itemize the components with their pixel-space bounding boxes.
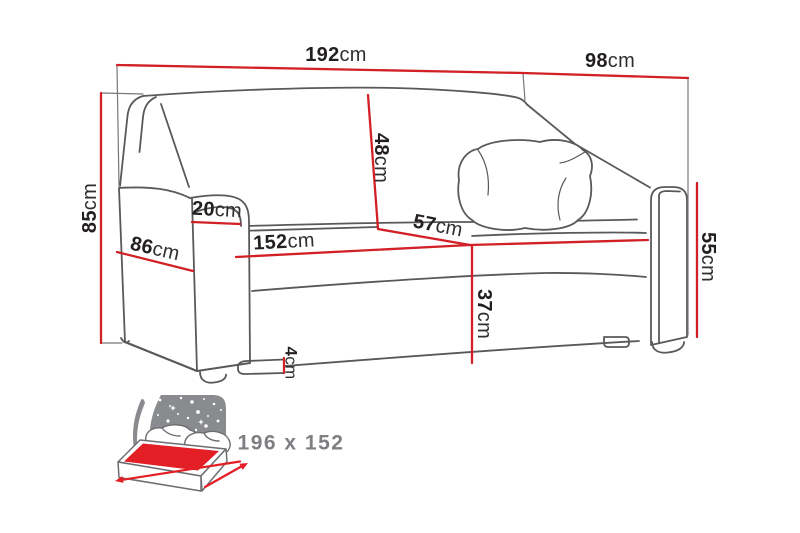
dimension-unit: cm [282, 356, 301, 379]
dimension-unit: cm [697, 255, 719, 282]
dimension-unit: cm [473, 312, 495, 339]
dimension-label-seat-width: 152cm [253, 230, 316, 253]
diagram-line-art [0, 0, 800, 533]
dimension-value: 192 [305, 44, 339, 66]
sofa-pillow [458, 140, 592, 230]
dim-line-overall-depth [523, 73, 688, 78]
dimension-label-backrest-height: 48cm [371, 133, 391, 183]
dimension-value: 20 [191, 198, 215, 221]
dimension-unit: cm [340, 44, 367, 66]
dimension-label-seat-height: 37cm [474, 289, 494, 339]
sleeping-area-size-label: 196 x 152 [238, 433, 345, 454]
dimension-value: 152 [253, 231, 288, 255]
dimension-value: 85 [79, 210, 101, 233]
dimension-label-leg-height: 4cm [283, 346, 300, 379]
dimension-value: 37 [473, 289, 495, 312]
dimension-unit: cm [608, 50, 635, 72]
dim-line-overall-width [117, 65, 523, 73]
dimension-value: 98 [585, 50, 608, 72]
dimension-label-overall-depth: 98cm [585, 51, 635, 71]
dimension-unit: cm [370, 156, 392, 183]
sofa-dimension-diagram: 192cm 98cm 85cm 86cm 20cm 48cm 57cm 152c… [0, 0, 800, 533]
dimension-value: 48 [370, 133, 392, 156]
dimension-unit: cm [287, 229, 315, 252]
dimension-value: 55 [697, 232, 719, 255]
sofa-line-art [119, 88, 687, 383]
bed-icon [115, 395, 248, 491]
dimension-label-overall-width: 192cm [305, 45, 367, 65]
dimension-label-armrest-width: 20cm [191, 199, 242, 222]
dimension-value: 4 [282, 346, 301, 356]
dimension-unit: cm [79, 183, 101, 210]
dimension-label-armrest-height: 55cm [698, 232, 718, 282]
dimension-unit: cm [214, 199, 242, 222]
dimension-label-overall-height: 85cm [80, 183, 100, 233]
sofa-armrest-right [604, 187, 687, 353]
